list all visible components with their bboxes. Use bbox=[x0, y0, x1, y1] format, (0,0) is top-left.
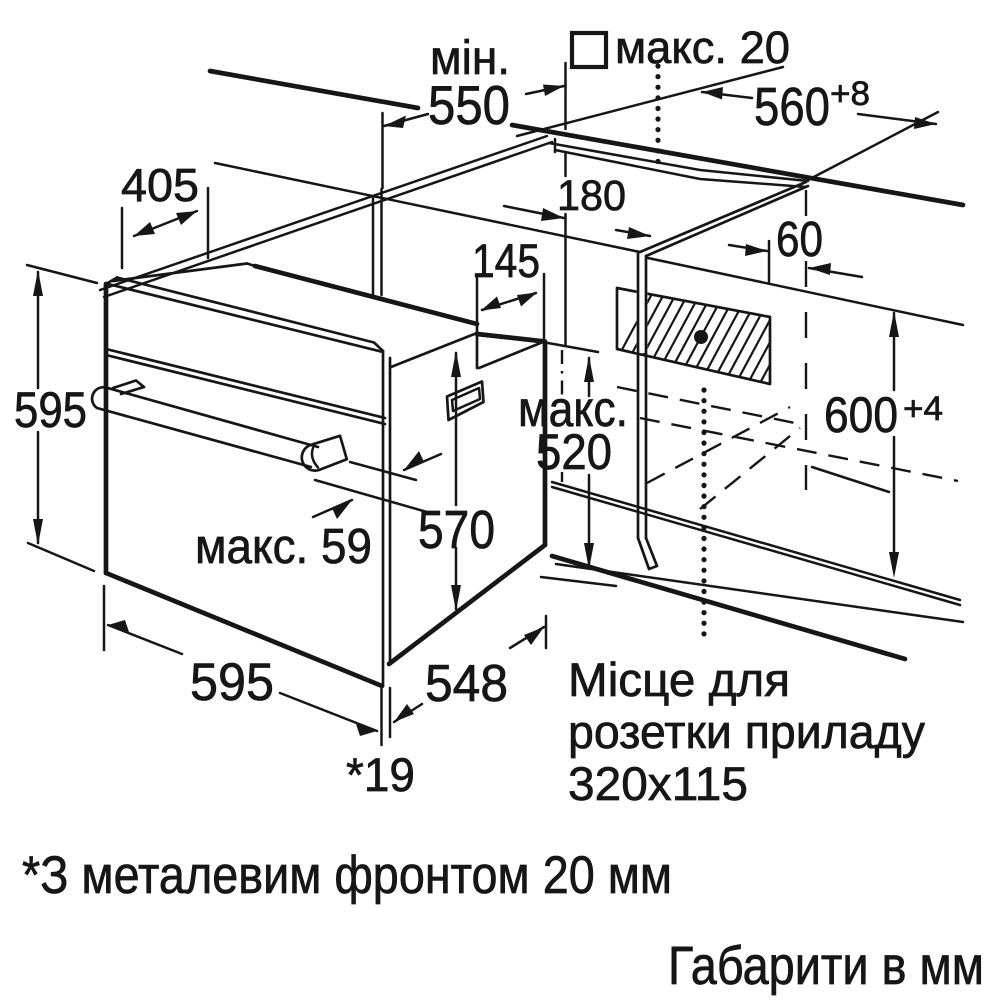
svg-text:+8: +8 bbox=[830, 75, 870, 113]
svg-text:595: 595 bbox=[190, 653, 274, 712]
svg-text:Місце для: Місце для bbox=[568, 653, 790, 706]
svg-text:145: 145 bbox=[472, 234, 540, 287]
svg-text:548: 548 bbox=[425, 655, 508, 713]
svg-text:520: 520 bbox=[536, 424, 612, 480]
svg-text:розетки приладу: розетки приладу bbox=[568, 705, 925, 758]
svg-text:405: 405 bbox=[121, 159, 199, 211]
svg-text:Габарити в мм: Габарити в мм bbox=[668, 936, 984, 996]
svg-text:+4: +4 bbox=[903, 390, 943, 428]
svg-text:320x115: 320x115 bbox=[568, 757, 748, 810]
svg-text:*З металевим фронтом 20 мм: *З металевим фронтом 20 мм bbox=[22, 846, 672, 905]
svg-text:560: 560 bbox=[754, 77, 830, 137]
svg-text:600: 600 bbox=[824, 387, 898, 443]
svg-text:60: 60 bbox=[776, 213, 823, 267]
svg-text:*19: *19 bbox=[346, 748, 415, 801]
svg-text:макс. 20: макс. 20 bbox=[615, 22, 790, 73]
svg-text:550: 550 bbox=[428, 74, 510, 136]
svg-text:макс. 59: макс. 59 bbox=[195, 520, 372, 574]
svg-text:595: 595 bbox=[14, 382, 87, 438]
svg-text:180: 180 bbox=[557, 172, 626, 220]
svg-text:570: 570 bbox=[418, 500, 495, 560]
